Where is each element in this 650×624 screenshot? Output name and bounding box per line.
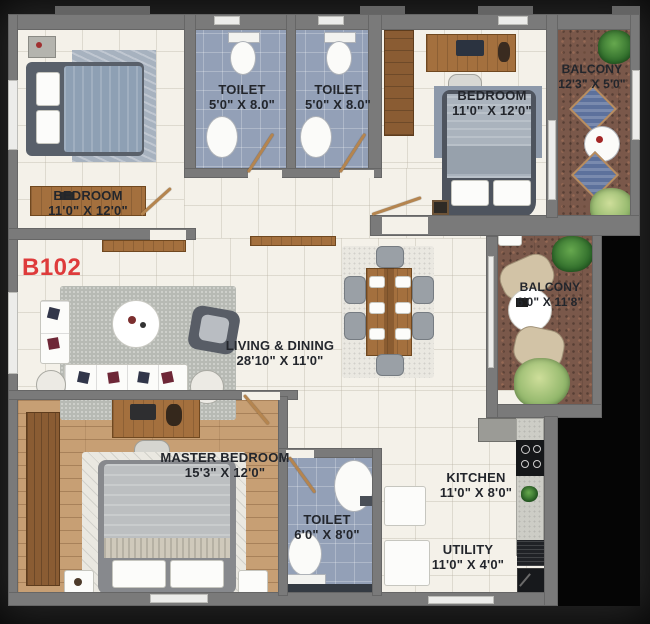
- room-name: UTILITY: [406, 542, 530, 557]
- cushion: [77, 371, 90, 384]
- placemat: [395, 276, 411, 288]
- dining-chair: [344, 312, 366, 340]
- room-label-balcony-top: BALCONY 12'3" X 5'0": [546, 62, 638, 92]
- room-label-balcony-right: BALCONY 6'0" X 11'8": [498, 280, 602, 310]
- room-dims: 15'3" X 12'0": [138, 465, 312, 480]
- decor-item: [166, 404, 182, 426]
- pillow: [36, 72, 60, 106]
- decor-item: [74, 578, 82, 586]
- room-name: LIVING & DINING: [198, 338, 362, 353]
- placemat: [395, 328, 411, 340]
- pillow: [36, 110, 60, 144]
- bed-duvet: [64, 66, 142, 152]
- toilet-fixture: [326, 41, 352, 75]
- pillow: [451, 180, 489, 206]
- placemat: [395, 302, 411, 314]
- room-label-toilet-2: TOILET 5'0" X 8.0": [292, 82, 384, 112]
- coffee-table: [112, 300, 160, 348]
- unit-number: B102: [22, 254, 81, 282]
- room-dims: 11'0" X 8'0": [414, 485, 538, 500]
- burner: [533, 460, 541, 468]
- decor-item: [128, 316, 136, 324]
- cushion: [161, 371, 174, 384]
- window: [150, 594, 208, 603]
- window: [498, 16, 528, 25]
- wall-segment: [372, 448, 382, 596]
- door-opening: [382, 217, 428, 234]
- dining-chair: [412, 312, 434, 340]
- room-dims: 11'0" X 4'0": [406, 557, 530, 572]
- nightstand: [238, 570, 268, 594]
- sliding-door: [548, 120, 556, 200]
- room-dims: 5'0" X 8.0": [292, 97, 384, 112]
- room-name: MASTER BEDROOM: [138, 450, 312, 465]
- room-dims: 6'0" X 11'8": [498, 295, 602, 310]
- decor-item: [498, 42, 510, 62]
- laptop: [130, 404, 156, 420]
- window: [428, 596, 494, 604]
- bed-blanket: [104, 538, 230, 558]
- placemat: [369, 302, 385, 314]
- wall-segment: [184, 14, 196, 178]
- wall-segment: [592, 230, 602, 416]
- room-name: TOILET: [196, 82, 288, 97]
- room-name: BALCONY: [498, 280, 602, 295]
- wardrobe: [26, 412, 60, 586]
- console-table: [102, 240, 186, 252]
- door-opening: [340, 170, 374, 178]
- decor-item: [36, 42, 42, 48]
- room-name: BALCONY: [546, 62, 638, 77]
- bed-blanket: [447, 146, 531, 174]
- room-dims: 5'0" X 8.0": [196, 97, 288, 112]
- window: [214, 16, 240, 25]
- room-name: BEDROOM: [18, 188, 158, 203]
- sliding-door: [488, 256, 494, 368]
- wall-segment: [544, 416, 558, 606]
- wardrobe: [384, 30, 414, 136]
- toilet-fixture: [230, 41, 256, 75]
- room-dims: 12'3" X 5'0": [546, 77, 638, 92]
- room-name: TOILET: [292, 82, 384, 97]
- desk: [112, 398, 200, 438]
- decor-item: [140, 322, 146, 328]
- room-dims: 11'0" X 12'0": [410, 103, 574, 118]
- room-dims: 11'0" X 12'0": [18, 203, 158, 218]
- cushion: [107, 371, 119, 383]
- room-label-kitchen: KITCHEN 11'0" X 8'0": [414, 470, 538, 500]
- burner: [533, 445, 541, 453]
- dining-chair: [376, 354, 404, 376]
- dining-chair: [412, 276, 434, 304]
- pillow: [112, 560, 166, 588]
- window: [8, 80, 18, 150]
- room-label-utility: UTILITY 11'0" X 4'0": [406, 542, 530, 572]
- room-label-living-dining: LIVING & DINING 28'10" X 11'0": [198, 338, 362, 368]
- placemat: [369, 276, 385, 288]
- dining-chair: [344, 276, 366, 304]
- dining-chair: [376, 246, 404, 268]
- room-name: TOILET: [282, 512, 372, 527]
- decor-item: [596, 136, 603, 143]
- room-label-bedroom-top-left: BEDROOM 11'0" X 12'0": [18, 188, 158, 218]
- door-opening: [150, 230, 186, 240]
- floor-plan: BEDROOM 11'0" X 12'0" TOILET 5'0" X 8.0"…: [0, 0, 650, 624]
- room-label-toilet-3: TOILET 6'0" X 8'0": [282, 512, 372, 542]
- room-dims: 28'10" X 11'0": [198, 353, 362, 368]
- cushion: [47, 337, 60, 350]
- window: [318, 16, 344, 25]
- cushion: [137, 371, 150, 384]
- laptop: [456, 40, 484, 56]
- room-dims: 6'0" X 8'0": [282, 527, 372, 542]
- room-label-toilet-1: TOILET 5'0" X 8.0": [196, 82, 288, 112]
- sink: [300, 116, 332, 158]
- decor-item: [432, 200, 449, 215]
- console-table: [250, 236, 336, 246]
- placemat: [369, 328, 385, 340]
- burner: [521, 460, 529, 468]
- sink: [206, 116, 238, 158]
- window: [8, 292, 18, 374]
- pillow: [493, 180, 531, 206]
- room-name: KITCHEN: [414, 470, 538, 485]
- room-label-bedroom-top-right: BEDROOM 11'0" X 12'0": [410, 88, 574, 118]
- door-opening: [248, 170, 282, 178]
- table-runner: [384, 268, 394, 356]
- burner: [521, 445, 530, 454]
- room-label-master-bedroom: MASTER BEDROOM 15'3" X 12'0": [138, 450, 312, 480]
- pillow: [170, 560, 224, 588]
- wall-segment: [278, 396, 288, 596]
- nightstand: [28, 36, 56, 58]
